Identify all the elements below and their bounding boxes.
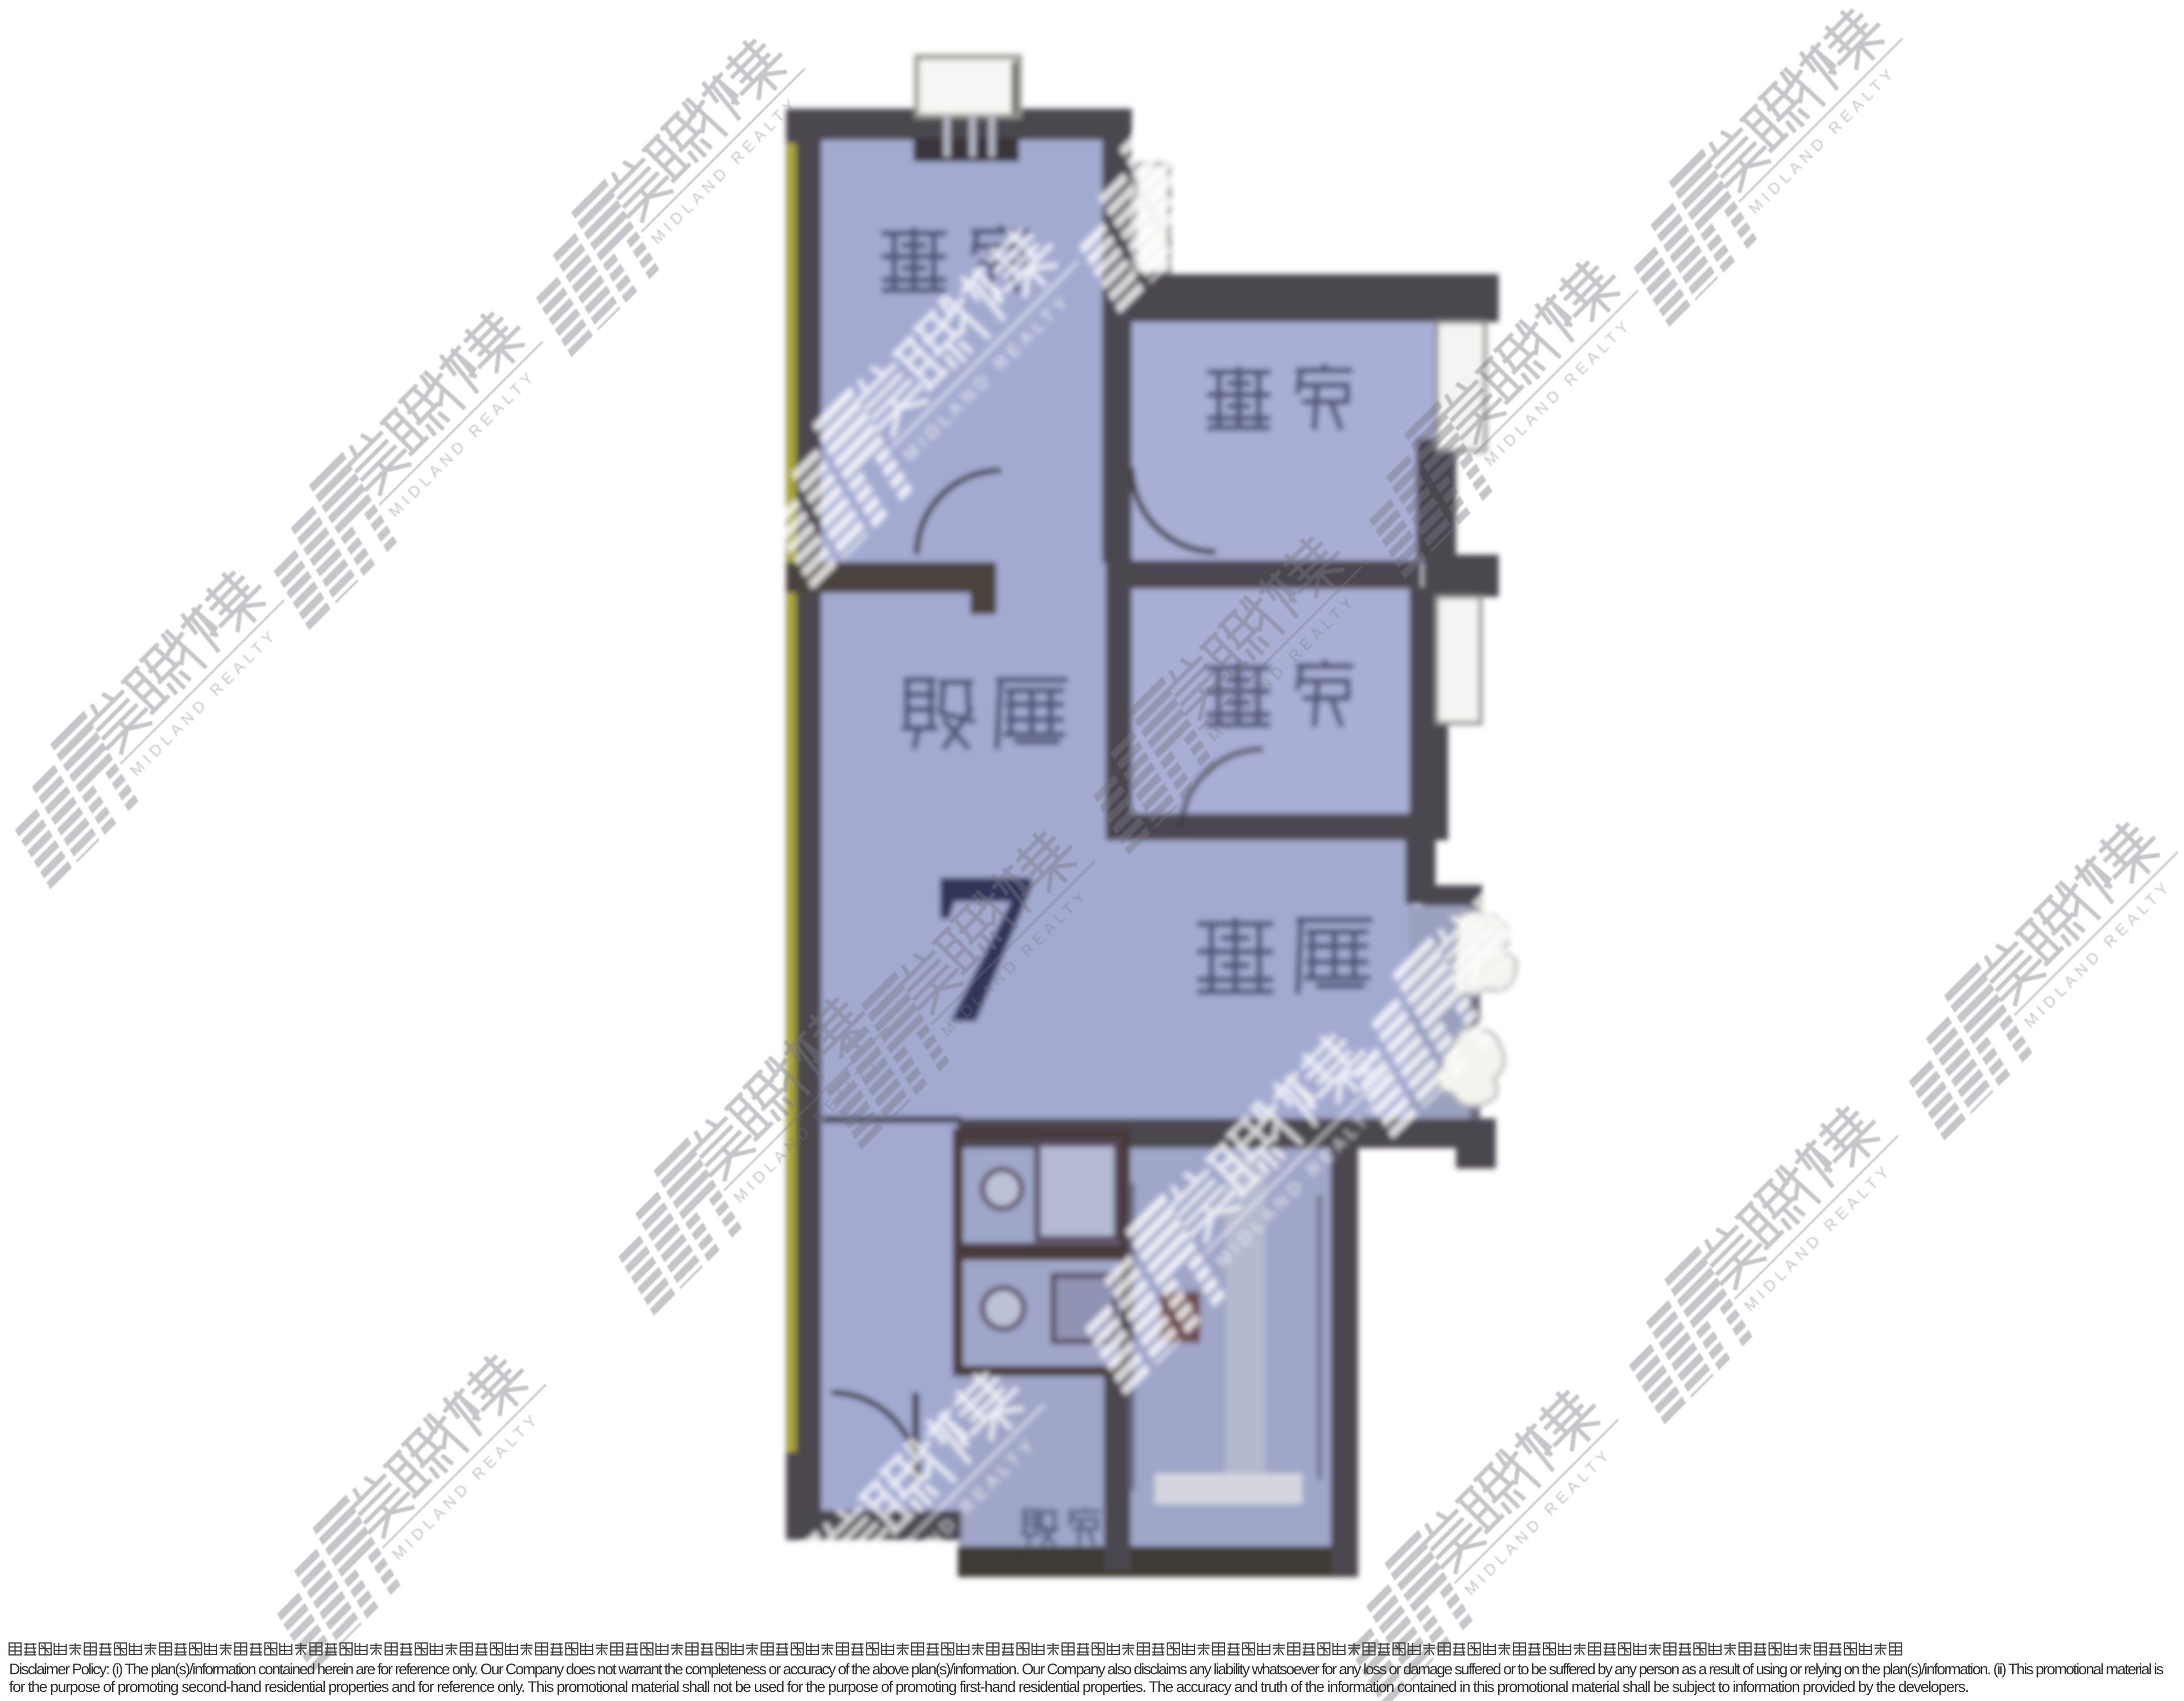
- svg-text:Disclaimer Policy: (i) The pla: Disclaimer Policy: (i) The plan(s)/infor…: [9, 1661, 2164, 1678]
- svg-text:for the purpose of promoting s: for the purpose of promoting second-hand…: [9, 1678, 1968, 1695]
